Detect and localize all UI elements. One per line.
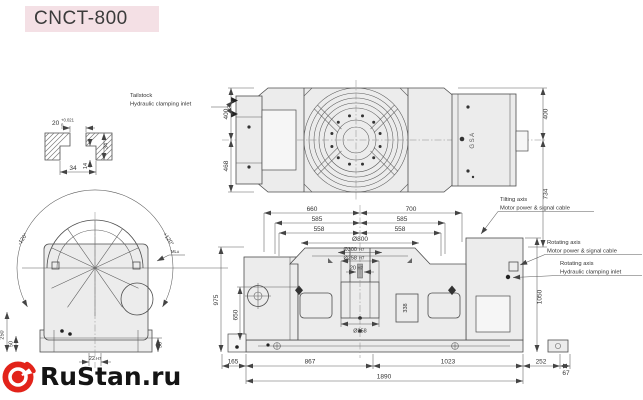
front-left-column: [228, 257, 298, 352]
detail-slot-width: 20: [52, 120, 60, 127]
rot-hyd-line1: Rotating axis: [560, 261, 594, 267]
model-title-box: CNCT-800: [25, 6, 159, 32]
machine-brand-logo: GSA: [470, 131, 476, 148]
catalog-drawing-page: 20 +0.021 0 34 14 34: [0, 0, 643, 400]
dim-650: 650: [233, 309, 240, 320]
dim-700: 700: [406, 206, 417, 213]
front-bottom-dims: 165 867 1023 252 67 1890: [222, 354, 570, 384]
dim-585-left: 585: [312, 216, 323, 223]
ml-note: ML±: [157, 249, 185, 261]
tailstock-label-line2: Hydraulic clamping inlet: [130, 102, 192, 108]
tailstock-callout: Tailstock Hydraulic clamping inlet: [130, 93, 233, 115]
tilting-axis-label-line2: Motor power & signal cable: [500, 206, 570, 212]
front-right-dims: 1050: [525, 238, 544, 352]
dim-50-left: 50: [9, 341, 15, 347]
fit-bore-258: H7: [359, 256, 365, 261]
dim-975: 975: [213, 294, 220, 305]
dim-67: 67: [562, 370, 570, 377]
tilt-motor-block: GSA: [452, 94, 528, 186]
front-view: 338 660 700 585 585: [213, 205, 642, 384]
detail-tol-lower: 0: [61, 123, 64, 128]
dim-table-diameter: Ø800: [352, 236, 368, 243]
dim-252: 252: [536, 359, 547, 366]
fit-key-20: H7: [358, 266, 364, 271]
detail-cavity-width: 34: [69, 165, 77, 172]
dim-1023: 1023: [441, 359, 456, 366]
dim-165: 165: [228, 359, 239, 366]
hatch-lines: [45, 133, 112, 160]
front-center-body: 338: [290, 248, 466, 340]
dim-867: 867: [305, 359, 316, 366]
tilting-axis-callout: Tilting axis Motor power & signal cable: [481, 197, 594, 234]
dim-1890: 1890: [377, 374, 392, 381]
left-bracket: [228, 334, 246, 352]
watermark-brand-text[interactable]: RuStan.ru: [40, 362, 181, 391]
ml-note-text: ML±: [171, 249, 180, 254]
dim-468-left: 468: [223, 160, 230, 171]
fit-bore-300: H7: [359, 247, 365, 252]
detail-cavity-height: 14: [83, 163, 89, 169]
rot-power-line1: Rotating axis: [547, 240, 581, 246]
dim-spigot-258: Ø258: [353, 329, 366, 335]
dim-558-right: 558: [395, 226, 406, 233]
angle-plus-120: +120°: [161, 232, 174, 247]
dim-50-right: 50: [158, 342, 164, 348]
tailstock-label-line1: Tailstock: [130, 93, 152, 99]
dim-250: 250: [0, 330, 6, 339]
rustan-logo-icon: [1, 358, 37, 394]
dim-1050: 1050: [537, 289, 544, 304]
top-view: GSA 400 468 400 734 Tailstock Hydraulic …: [130, 80, 594, 247]
side-view: -120° +120° ML± 22 H7 50 250 50: [0, 190, 228, 368]
front-right-column: [466, 238, 523, 340]
angle-minus-120: -120°: [17, 232, 29, 246]
dim-bore-300: Ø300: [344, 247, 357, 253]
dim-734-right: 734: [543, 188, 550, 199]
tilting-axis-label-line1: Tilting axis: [500, 197, 527, 203]
rot-hyd-line2: Hydraulic clamping inlet: [560, 270, 622, 276]
dim-bore-258: Ø258: [344, 256, 357, 262]
hydraulic-inlet-point: [506, 275, 510, 279]
dim-585-right: 585: [397, 216, 408, 223]
watermark: RuStan.ru: [1, 358, 181, 394]
dim-558-left: 558: [314, 226, 325, 233]
dim-338: 338: [403, 303, 409, 312]
detail-depth-total: 34: [104, 143, 110, 149]
dim-400-right: 400: [543, 108, 550, 119]
right-outrigger-foot: [548, 340, 568, 352]
rotating-axis-hydraulic-callout: Rotating axis Hydraulic clamping inlet: [513, 261, 642, 278]
dim-660: 660: [307, 206, 318, 213]
technical-drawing: 20 +0.021 0 34 14 34: [0, 0, 643, 400]
dim-key-20: 20: [350, 266, 356, 272]
rot-power-line2: Motor power & signal cable: [547, 249, 617, 255]
tslot-detail-view: 20 +0.021 0 34 14 34: [45, 118, 112, 176]
model-title: CNCT-800: [34, 8, 128, 30]
